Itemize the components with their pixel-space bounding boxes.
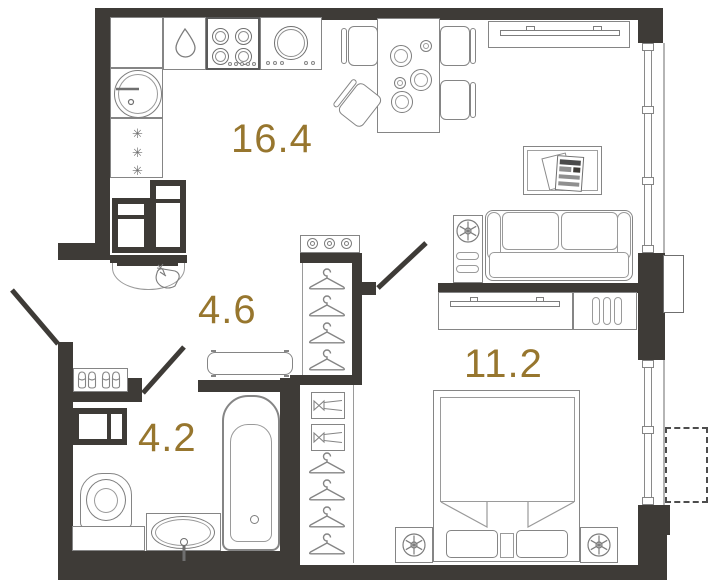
wall-bottom-bathroom <box>58 551 300 580</box>
entry-door-leaf <box>12 290 58 344</box>
wall-bottom-right <box>638 535 667 580</box>
wall-left-lower <box>58 342 73 580</box>
closet-shelf-box <box>311 424 345 451</box>
snowflake-icon: ✳ <box>132 127 143 140</box>
burner-inner <box>238 31 249 42</box>
wall-left-upper <box>95 8 110 260</box>
plate-inner <box>395 95 409 109</box>
facade-pilaster <box>663 255 684 313</box>
sofa-cushion <box>561 212 618 250</box>
wall-bathroom-top-right <box>198 380 292 392</box>
window-living <box>644 43 652 253</box>
entry-console-top <box>117 263 178 266</box>
chair-seat <box>440 80 470 120</box>
coat-hook-inner <box>327 241 332 246</box>
oven-ring-inner <box>277 29 305 57</box>
closet-shelf-box <box>311 392 345 419</box>
wall-window-pier <box>638 253 665 360</box>
paper-line <box>559 166 571 172</box>
washing-machine <box>73 408 127 445</box>
wall-entry-stub <box>58 243 110 260</box>
stove-knob <box>246 62 250 66</box>
stove-knob <box>240 62 244 66</box>
tv-foot <box>536 297 544 302</box>
paper-line <box>559 174 580 179</box>
bathroom-door-leaf <box>143 347 184 393</box>
window-mullion <box>642 360 654 368</box>
radiator-slat <box>614 297 622 325</box>
sink-faucet <box>180 538 188 546</box>
room-label-bathroom: 4.2 <box>138 418 197 458</box>
bedroom-door-leaf <box>378 243 426 288</box>
kitchen-round-sink-inner <box>118 74 158 114</box>
bathtub-inner <box>230 424 272 542</box>
oven-knob <box>280 61 284 65</box>
burner-inner <box>215 51 226 62</box>
oven-knob <box>311 61 315 65</box>
cabinet-door <box>118 219 144 247</box>
oven-knob <box>273 61 277 65</box>
wall-bathtub-closet <box>280 378 300 580</box>
nightstand-left <box>395 527 433 563</box>
stove-knob <box>234 62 238 66</box>
chair-seat <box>348 26 378 66</box>
cabinet-drawer <box>156 186 180 199</box>
wall-closet-bottom <box>290 375 360 385</box>
paper-sheet-front <box>555 155 584 192</box>
tall-cabinet-left <box>112 198 150 253</box>
hanger-icon <box>310 534 345 554</box>
tv-living <box>500 30 620 36</box>
window-mullion <box>642 426 654 434</box>
facade-line-living <box>663 43 665 253</box>
stove-knob <box>228 62 232 66</box>
nightstand-right <box>580 527 618 563</box>
wall-bathroom-door-stub <box>128 378 142 392</box>
stove-knob <box>252 62 256 66</box>
oven-knob <box>266 61 270 65</box>
entry-console <box>112 263 185 290</box>
wall-closet-right <box>352 253 362 385</box>
chair-back <box>341 28 347 64</box>
coat-hook-inner <box>344 241 349 246</box>
shoe-rack <box>73 368 128 392</box>
small-plate-inner <box>397 80 403 86</box>
bed-blanket <box>440 397 575 502</box>
wall-closet-top <box>300 253 360 263</box>
window-mullion <box>642 43 654 51</box>
window-mullion <box>642 245 654 253</box>
sofa-back <box>489 252 629 278</box>
radiator-slat <box>603 297 611 325</box>
kitchen-counter-cabinet <box>110 17 163 68</box>
sofa-cushion <box>502 212 559 250</box>
burner-inner <box>215 31 226 42</box>
snowflake-icon: ✳ <box>132 146 143 159</box>
chair-back <box>470 82 476 118</box>
side-table-shelf <box>456 252 479 260</box>
room-label-bedroom: 11.2 <box>464 344 543 384</box>
plate-inner <box>414 73 428 87</box>
small-plate-inner <box>423 43 429 49</box>
pillow <box>516 530 568 558</box>
paper-line <box>560 159 581 165</box>
pillow <box>446 530 498 558</box>
washer-lid <box>79 414 107 439</box>
bedroom-closet-side <box>353 385 354 563</box>
burner-inner <box>238 51 249 62</box>
room-label-kitchen-living: 16.4 <box>231 119 313 159</box>
tv-foot <box>526 26 535 31</box>
coat-hook-inner <box>310 241 315 246</box>
chair-back <box>470 28 476 64</box>
wall-bottom <box>300 565 667 580</box>
paper-line <box>573 167 580 172</box>
tv-foot <box>593 26 602 31</box>
floor-plan: ✳ ✳ ✳ <box>0 0 720 588</box>
window-mullion <box>642 106 654 114</box>
plate-inner <box>394 49 408 63</box>
paper-line <box>558 181 579 186</box>
side-table-shelf <box>456 265 479 273</box>
wall-bedroom-door-cap <box>360 282 376 295</box>
wall-kitchen-partition <box>110 255 187 263</box>
hanger-icon <box>310 453 345 473</box>
hallway-closet-interior <box>302 263 352 375</box>
wall-top-right-corner <box>638 8 663 43</box>
toilet-cistern-box <box>72 526 145 551</box>
tv-foot <box>470 297 478 302</box>
chair-seat <box>440 26 470 66</box>
hanger-icon <box>310 507 345 527</box>
tall-cabinet-right <box>150 180 186 253</box>
hallway-bench <box>207 352 293 375</box>
toilet-bowl-inner <box>94 488 118 513</box>
radiator-slat <box>592 297 600 325</box>
cabinet-drawer <box>118 204 144 215</box>
tv-console-bedroom <box>438 292 573 330</box>
washer-panel <box>111 414 122 439</box>
wall-bottom-right-step <box>638 505 670 535</box>
window-mullion <box>642 177 654 185</box>
snowflake-icon: ✳ <box>132 164 143 177</box>
oven-knob <box>304 61 308 65</box>
hanger-icon <box>310 480 345 500</box>
bed-runner <box>500 533 514 558</box>
window-mullion <box>642 497 654 505</box>
balcony-dashed-outline <box>665 427 708 503</box>
room-label-hallway: 4.6 <box>198 290 257 330</box>
cabinet-door <box>156 203 180 247</box>
kitchen-cabinet-dishwasher <box>163 17 206 70</box>
bathtub-drain <box>250 515 259 524</box>
